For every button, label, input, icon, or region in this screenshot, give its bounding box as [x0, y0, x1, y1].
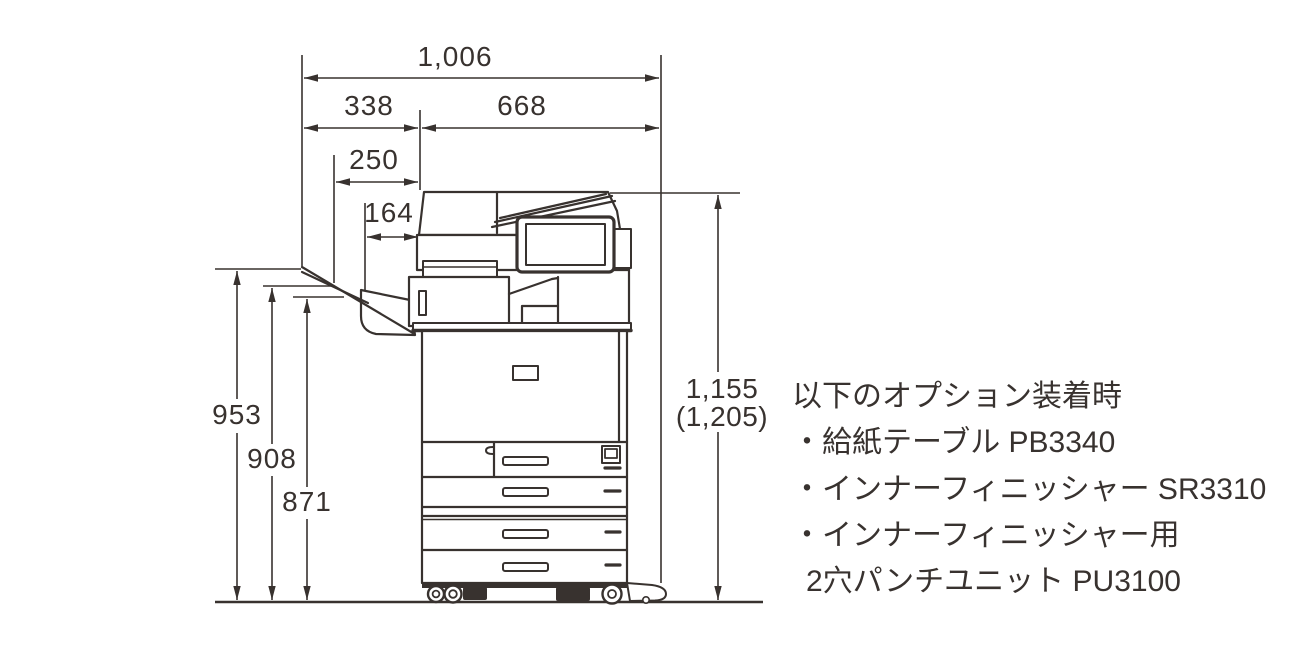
note-line: ・インナーフィニッシャー用 [792, 519, 1180, 553]
dim-label-height-871: 871 [262, 488, 352, 516]
casters [422, 583, 666, 604]
note-line: ・インナーフィニッシャー SR3310 [792, 473, 1266, 507]
body-top-band [413, 323, 631, 331]
note-line: 2穴パンチユニット PU3100 [792, 565, 1181, 599]
dim-label-height-908: 908 [227, 445, 317, 473]
dim-label-height-1205: (1,205) [642, 403, 802, 431]
dim-label-tray-extension: 250 [329, 146, 419, 174]
dim-label-left-width: 338 [324, 92, 414, 120]
dim-label-tray-inner: 164 [344, 199, 434, 227]
exit-ledge [423, 261, 497, 277]
dim-label-height-1155: 1,155 [642, 375, 802, 403]
printer-machine [302, 192, 666, 604]
inner-finisher [409, 270, 629, 326]
dim-label-body-height: 1,155 (1,205) [642, 375, 802, 431]
dimension-diagram: 1,006 338 668 250 164 953 908 871 1,155 … [0, 0, 1300, 650]
panel-bracket [614, 229, 631, 268]
note-line: ・給紙テーブル PB3340 [792, 426, 1115, 460]
dim-label-height-953: 953 [192, 401, 282, 429]
finisher-output-tray [302, 267, 415, 335]
dim-label-total-width: 1,006 [410, 43, 500, 71]
control-panel [517, 217, 614, 272]
note-heading: 以下のオプション装着時 [792, 380, 1122, 414]
dim-label-body-width: 668 [477, 92, 567, 120]
